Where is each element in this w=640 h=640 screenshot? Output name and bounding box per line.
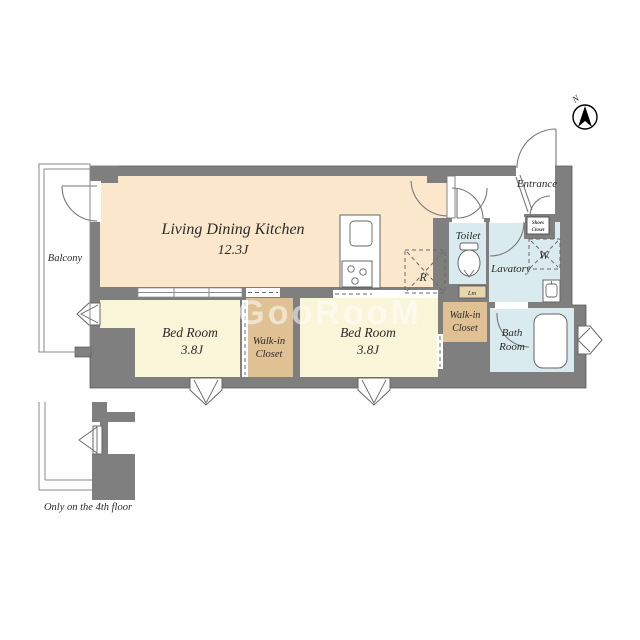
label-entrance: Entrance bbox=[516, 178, 557, 190]
label-refrigerator: R bbox=[418, 270, 427, 284]
compass-north-label: N bbox=[570, 92, 582, 105]
label-balcony: Balcony bbox=[48, 253, 83, 264]
bath-door-opening bbox=[495, 302, 528, 309]
label-wic1-line1: Walk-in bbox=[253, 336, 285, 347]
inset-wall bbox=[92, 402, 107, 413]
inset-window bbox=[93, 426, 102, 454]
label-linen: Lm bbox=[467, 290, 477, 297]
toilet-fixture bbox=[458, 243, 480, 277]
label-shoes-closet-line2: Closet bbox=[532, 228, 545, 233]
label-bedroom1-name: Bed Room bbox=[162, 325, 218, 340]
vanity bbox=[543, 280, 560, 302]
toilet-bowl bbox=[458, 250, 480, 276]
inset-wall bbox=[92, 412, 135, 422]
bathtub bbox=[534, 314, 567, 368]
wall-corner-topleft bbox=[90, 166, 118, 183]
bath-window bbox=[578, 326, 602, 354]
floor-plan: N GooRooM Living Dining Kitchen 12.3J Be… bbox=[0, 0, 640, 640]
label-wic2-line1: Walk-in bbox=[450, 310, 481, 321]
lavatory-door-opening bbox=[490, 217, 525, 223]
label-bath-line2: Room bbox=[498, 341, 525, 353]
label-lavatory: Lavatory bbox=[490, 263, 531, 275]
fourth-floor-inset bbox=[39, 402, 135, 500]
label-bedroom2-name: Bed Room bbox=[340, 325, 396, 340]
ldk-door-leaf bbox=[447, 176, 455, 218]
floor-plan-page: N GooRooM Living Dining Kitchen 12.3J Be… bbox=[0, 0, 640, 640]
label-wic2-line2: Closet bbox=[452, 323, 478, 334]
label-shoes-closet-line1: Shoes bbox=[532, 221, 544, 226]
label-only-4th-floor: Only on the 4th floor bbox=[44, 502, 133, 513]
label-toilet: Toilet bbox=[456, 230, 482, 242]
label-bath-line1: Bath bbox=[502, 327, 523, 339]
entrance-door-opening bbox=[516, 162, 555, 177]
label-ldk-size: 12.3J bbox=[218, 243, 250, 258]
label-ldk-name: Living Dining Kitchen bbox=[160, 221, 304, 238]
toilet-tank bbox=[460, 243, 478, 250]
label-washer: W bbox=[539, 248, 550, 262]
label-bedroom1-size: 3.8J bbox=[180, 342, 204, 357]
inset-wall bbox=[92, 454, 135, 500]
label-wic1-line2: Closet bbox=[256, 349, 284, 360]
room-wic2 bbox=[443, 302, 487, 342]
compass: N bbox=[570, 92, 597, 129]
label-bedroom2-size: 3.8J bbox=[356, 342, 380, 357]
